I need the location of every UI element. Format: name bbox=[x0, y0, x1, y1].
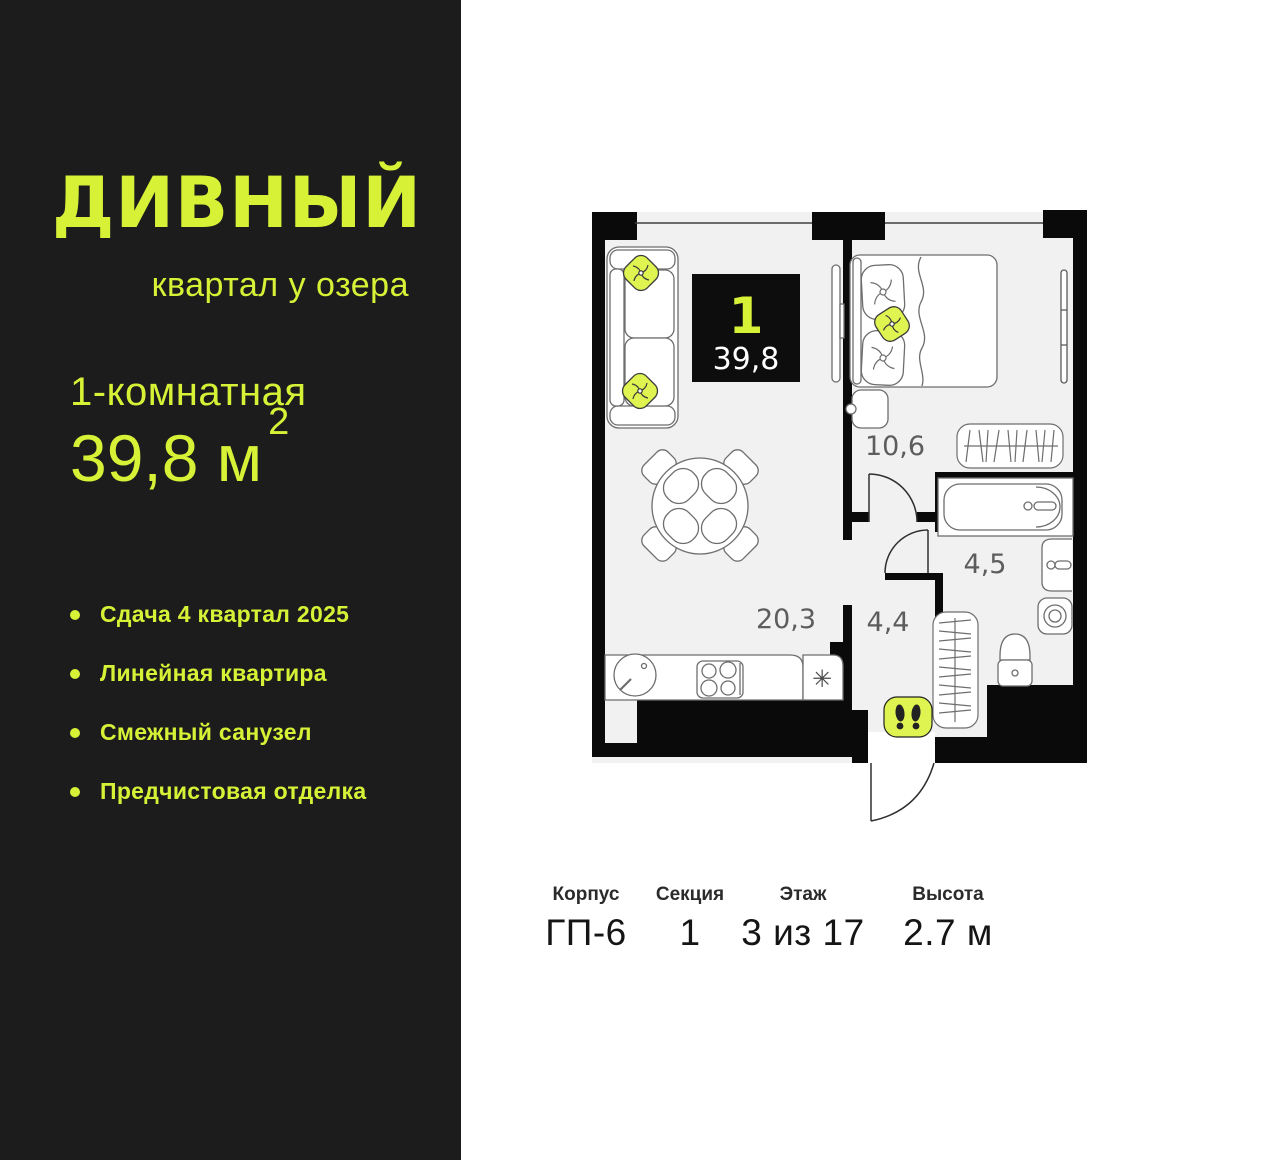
detail-value: 3 из 17 bbox=[741, 912, 864, 954]
area-value: 39,8 м bbox=[70, 421, 262, 495]
bedroom-window bbox=[1061, 270, 1067, 383]
detail-label: Корпус bbox=[545, 884, 627, 906]
dining-table bbox=[638, 446, 761, 564]
bedside-table bbox=[846, 390, 888, 428]
bullet-icon bbox=[70, 728, 80, 738]
area-superscript: 2 bbox=[268, 401, 289, 443]
detail-value: ГП-6 bbox=[545, 912, 627, 954]
apartment-badge: 1 39,8 bbox=[692, 274, 800, 382]
stove bbox=[697, 661, 743, 698]
feature-label: Смежный санузел bbox=[100, 719, 312, 746]
feature-item: Смежный санузел bbox=[70, 719, 366, 746]
detail-section: Секция 1 bbox=[656, 884, 724, 954]
feature-list: Сдача 4 квартал 2025 Линейная квартира С… bbox=[70, 601, 366, 805]
detail-building: Корпус ГП-6 bbox=[545, 884, 627, 954]
brand-subtitle: квартал у озера bbox=[57, 266, 409, 305]
detail-label: Секция bbox=[656, 884, 724, 906]
detail-floor: Этаж 3 из 17 bbox=[741, 884, 864, 954]
feature-item: Линейная квартира bbox=[70, 660, 366, 687]
badge-rooms: 1 bbox=[729, 287, 764, 345]
room-label-bedroom: 10,6 bbox=[865, 431, 925, 462]
detail-height: Высота 2.7 м bbox=[903, 884, 993, 954]
bathtub bbox=[938, 478, 1073, 536]
badge-area: 39,8 bbox=[713, 342, 780, 377]
room-label-hallway: 4,4 bbox=[867, 607, 910, 638]
detail-value: 1 bbox=[656, 912, 724, 954]
feature-label: Предчистовая отделка bbox=[100, 778, 366, 805]
apartment-area-title: 39,8 м2 bbox=[70, 420, 283, 496]
kitchen-counter bbox=[605, 654, 843, 700]
fridge-symbol: ✳ bbox=[812, 665, 832, 693]
bullet-icon bbox=[70, 610, 80, 620]
entrance-door bbox=[871, 763, 934, 821]
brand-logo: ДИВНЫЙ bbox=[52, 168, 417, 238]
washing-machine bbox=[1038, 598, 1072, 634]
floor-plan: 1 39,8 ✳ bbox=[590, 210, 1090, 825]
detail-label: Этаж bbox=[741, 884, 864, 906]
room-label-bathroom: 4,5 bbox=[964, 549, 1007, 580]
bullet-icon bbox=[70, 669, 80, 679]
bathroom-sink bbox=[1042, 539, 1072, 591]
wardrobe bbox=[957, 424, 1063, 468]
bullet-icon bbox=[70, 787, 80, 797]
detail-value: 2.7 м bbox=[903, 912, 993, 954]
detail-label: Высота bbox=[903, 884, 993, 906]
feature-label: Сдача 4 квартал 2025 bbox=[100, 601, 349, 628]
hallway-closet bbox=[933, 612, 978, 728]
feature-label: Линейная квартира bbox=[100, 660, 327, 687]
brand-panel: ДИВНЫЙ квартал у озера 1-комнатная 39,8 … bbox=[0, 0, 461, 1160]
footprints-icon bbox=[884, 697, 932, 737]
feature-item: Предчистовая отделка bbox=[70, 778, 366, 805]
room-label-living: 20,3 bbox=[756, 604, 816, 635]
feature-item: Сдача 4 квартал 2025 bbox=[70, 601, 366, 628]
toilet bbox=[998, 634, 1032, 686]
